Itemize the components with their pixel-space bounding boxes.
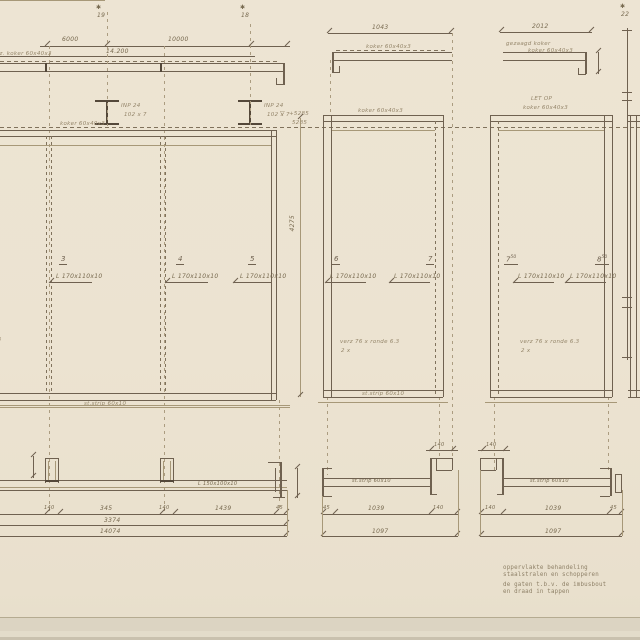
beam-top-line: [332, 52, 452, 53]
corner-profile: [502, 458, 504, 494]
beam-pencil-note: koker 60x40x3: [366, 44, 411, 51]
construction-line: [608, 397, 609, 470]
post-profile-inner: [163, 461, 164, 481]
end-profile: [610, 468, 612, 496]
frame-bottom-rail: [490, 390, 612, 391]
corner-profile: [436, 458, 437, 470]
dim-line-small: [478, 450, 510, 451]
dim-label: 345: [100, 506, 112, 512]
beam-end-hook: [585, 52, 587, 74]
beam-end-hook: [578, 74, 586, 75]
dim-label: 140: [485, 506, 495, 511]
frame-inner-line: [498, 130, 604, 131]
dim-line-small: [426, 450, 458, 451]
corner-profile: [436, 470, 452, 471]
edge-dim-tick: [622, 92, 632, 93]
plan-bar-line: [0, 490, 287, 491]
angle-note-leader: [326, 282, 366, 283]
edge-dim-tick: [622, 100, 632, 101]
mullion: [165, 136, 166, 393]
construction-line: [452, 33, 453, 470]
dim-label: 140: [159, 506, 169, 511]
post-base: [45, 480, 59, 482]
corner-profile: [452, 458, 453, 470]
construction-line: [0, 0, 105, 1]
angle-note: L 170x110x10: [56, 274, 103, 280]
dim-label: 10000: [168, 37, 189, 43]
ibeam-label: 102 x 7: [124, 112, 147, 119]
dim-label: 140: [44, 506, 54, 511]
panel-number: 7: [426, 256, 434, 265]
dim-line: [480, 536, 622, 537]
end-profile: [322, 496, 332, 497]
corner-profile: [497, 494, 504, 495]
paper-edge-strip: [0, 618, 640, 631]
end-profile: [600, 496, 610, 497]
beam-end-hook: [276, 84, 285, 85]
dim-extension: [480, 470, 481, 536]
beam-end-hook: [332, 52, 334, 72]
edge-dim-line: [627, 28, 628, 360]
panel-number: 6: [332, 256, 340, 265]
drawing-sheet: ✱ 19 ✱ 18 6000 10000 14.200 gez. koker 6…: [0, 0, 640, 640]
mullion: [46, 136, 47, 393]
dim-extension: [458, 470, 459, 536]
ibeam-label: 102 x 7: [267, 112, 290, 119]
plan-bar-note: st.strip 60x10: [530, 479, 569, 484]
dim-label: 2012: [532, 24, 548, 30]
base-line: [0, 405, 290, 406]
frame-stile: [490, 115, 491, 397]
dim-label: 3374: [104, 518, 120, 524]
dim-label: 140: [486, 443, 496, 448]
construction-line: [107, 12, 108, 126]
beam-joint: [45, 63, 47, 72]
strip-pencil-note: st.strip 60x10: [362, 391, 404, 398]
frame-bottom-rail: [0, 393, 276, 394]
surface-treatment-note: oppervlakte behandeling: [503, 566, 588, 572]
corner-profile: [430, 458, 452, 459]
section-mark-star: ✱: [620, 4, 625, 10]
dim-line: [328, 33, 452, 34]
dim-label: 1039: [545, 506, 561, 512]
beam-bottom-line: [332, 60, 452, 61]
end-cap: [615, 474, 622, 475]
frame-stile: [271, 130, 272, 400]
height-dim-line: [300, 118, 301, 397]
corner-profile: [430, 458, 432, 494]
angle-note-leader: [166, 282, 208, 283]
level-triangle-icon: ▽: [280, 110, 285, 118]
end-profile: [322, 468, 332, 469]
beam-bottom-line: [503, 60, 585, 61]
mullion: [160, 136, 161, 393]
dim-line: [322, 514, 458, 515]
base-line: [0, 407, 290, 408]
height-dim-label: 4275: [290, 215, 296, 231]
beam-end-hook: [332, 72, 340, 73]
end-profile: [273, 497, 285, 498]
dim-label: 140: [433, 506, 443, 511]
frame-top-rail: [0, 136, 276, 137]
corner-profile: [480, 470, 496, 471]
frame-pencil-note: koker 60x40x3: [523, 105, 568, 112]
post-profile: [160, 458, 174, 459]
surface-treatment-note: en draad in tappen: [503, 590, 569, 596]
angle-note-leader: [566, 282, 606, 283]
post-profile: [45, 458, 59, 459]
plan-bar-inner: [0, 487, 287, 488]
panel-number: 3: [59, 256, 67, 265]
beam-pencil-note: koker 60x40x3: [528, 48, 573, 55]
dim-line: [0, 514, 287, 515]
section-mark-number: 22: [621, 12, 629, 18]
base-line: [485, 402, 617, 403]
dim-extension: [322, 496, 323, 536]
dim-label: 1039: [368, 506, 384, 512]
weld-pencil-note: verz 76 x ronde 6.3: [340, 339, 399, 346]
frame-top-rail: [323, 115, 443, 116]
frame-stile: [630, 115, 631, 397]
frame-inner-line: [0, 145, 271, 146]
frame-stile: [276, 130, 277, 400]
frame-stile-dashed: [435, 121, 436, 397]
corner-profile: [480, 458, 502, 459]
end-profile: [280, 462, 282, 497]
angle-note: L 170x110x10: [570, 274, 617, 280]
dim-label: 45: [276, 506, 283, 511]
end-profile: [600, 468, 610, 469]
beam-pencil-line: [0, 61, 280, 62]
angle-note: L 170x110x10: [394, 274, 441, 280]
strip-pencil-note: st.strip 60x10: [84, 401, 126, 408]
frame-top-rail: [490, 115, 612, 116]
frame-stile: [443, 115, 444, 397]
construction-line: [49, 46, 50, 512]
frame-top-rail: [0, 130, 276, 131]
post-base: [160, 480, 174, 482]
section-mark-star: ✱: [240, 5, 245, 11]
dim-label: 6000: [62, 37, 78, 43]
frame-pencil-note: koker 60x40x3: [60, 121, 105, 128]
dim-label: 1043: [372, 25, 388, 31]
plan-bar-line: [0, 480, 287, 481]
dim-extension: [287, 490, 288, 536]
dim-line: [322, 536, 458, 537]
construction-line: [327, 397, 328, 475]
panel-number: 4: [176, 256, 184, 265]
edge-dim-tick: [622, 30, 632, 31]
plan-bar-line: [502, 486, 610, 487]
mullion: [51, 136, 52, 393]
surface-treatment-note: staalstralen en schopperen: [503, 573, 599, 579]
corner-profile: [480, 458, 481, 470]
base-line: [318, 402, 448, 403]
dim-label: 14074: [100, 529, 121, 535]
dim-label: 1439: [215, 506, 231, 512]
panel-number: 5: [248, 256, 256, 265]
dim-line: [500, 32, 592, 33]
corner-profile: [430, 494, 437, 495]
end-cap: [615, 492, 622, 493]
section-mark-number: 18: [241, 13, 249, 19]
attention-pencil-note: LET OP: [531, 96, 552, 103]
dim-line: [40, 46, 290, 47]
angle-note: L 170x110x10: [172, 274, 219, 280]
angle-note-leader: [50, 282, 92, 283]
dim-line: [0, 536, 287, 537]
dim-label: 140: [434, 443, 444, 448]
frame-stile: [636, 115, 637, 397]
plan-bar-note: st.strip 60x10: [352, 479, 391, 484]
panel-number: 750: [504, 256, 518, 265]
panel-number: 850: [595, 256, 609, 265]
frame-bottom-rail: [490, 397, 612, 398]
frame-stile: [612, 115, 613, 397]
frame-pencil-note: koker 60x40x3: [358, 108, 403, 115]
post-profile-inner: [55, 461, 56, 481]
angle-note-leader: [514, 282, 554, 283]
beam-joint: [160, 63, 162, 72]
weld-pencil-note: verz 76 x ronde 6.3: [520, 339, 579, 346]
ibeam-label: INP 24: [121, 103, 141, 110]
weld-qty-note: 2 x: [341, 348, 350, 355]
post-profile-inner: [48, 461, 49, 481]
frame-inner-line: [331, 130, 435, 131]
frame-top-rail: [490, 121, 612, 122]
dim-line: [0, 525, 287, 526]
angle-note: L 170x110x10: [240, 274, 287, 280]
end-profile: [275, 468, 276, 492]
frame-bottom-rail: [628, 397, 640, 398]
dim-label: 45: [610, 506, 617, 511]
end-cap: [615, 474, 616, 492]
dim-label: 14.200: [106, 49, 129, 55]
angle-note-leader: [234, 282, 272, 283]
dim-label: 1097: [545, 529, 561, 535]
end-profile: [268, 462, 280, 463]
dim-label: 1097: [372, 529, 388, 535]
post-profile-inner: [170, 461, 171, 481]
frame-bottom-rail: [0, 400, 276, 401]
weld-qty-note: 2 x: [521, 348, 530, 355]
frame-stile-dashed: [498, 121, 499, 397]
beam-pencil-note: gez. koker 60x40x3: [0, 51, 52, 58]
surface-treatment-note: de gaten t.b.v. de imbusbout: [503, 583, 606, 589]
angle-note: L 170x110x10: [518, 274, 565, 280]
construction-line: [494, 397, 495, 470]
section-mark-number: 19: [97, 13, 105, 19]
frame-bottom-rail: [628, 390, 640, 391]
edge-pencil-note: verz 76 x ronde 6.3: [0, 337, 1, 344]
frame-top-rail: [323, 121, 443, 122]
angle-note: L 170x110x10: [330, 274, 377, 280]
section-mark-star: ✱: [96, 5, 101, 11]
dim-extension: [622, 490, 623, 536]
angle-note-leader: [390, 282, 430, 283]
beam-top-line: [0, 63, 283, 64]
frame-stile: [323, 115, 324, 397]
plan-bar-note: L 150x100x10: [198, 482, 237, 487]
construction-line: [250, 24, 251, 126]
beam-end-hook: [283, 63, 285, 84]
dim-label: 45: [323, 506, 330, 511]
construction-line: [330, 60, 331, 115]
end-profile: [322, 468, 324, 496]
corner-profile: [496, 458, 497, 470]
beam-bottom-line: [0, 71, 283, 72]
plan-bar-line: [322, 486, 432, 487]
